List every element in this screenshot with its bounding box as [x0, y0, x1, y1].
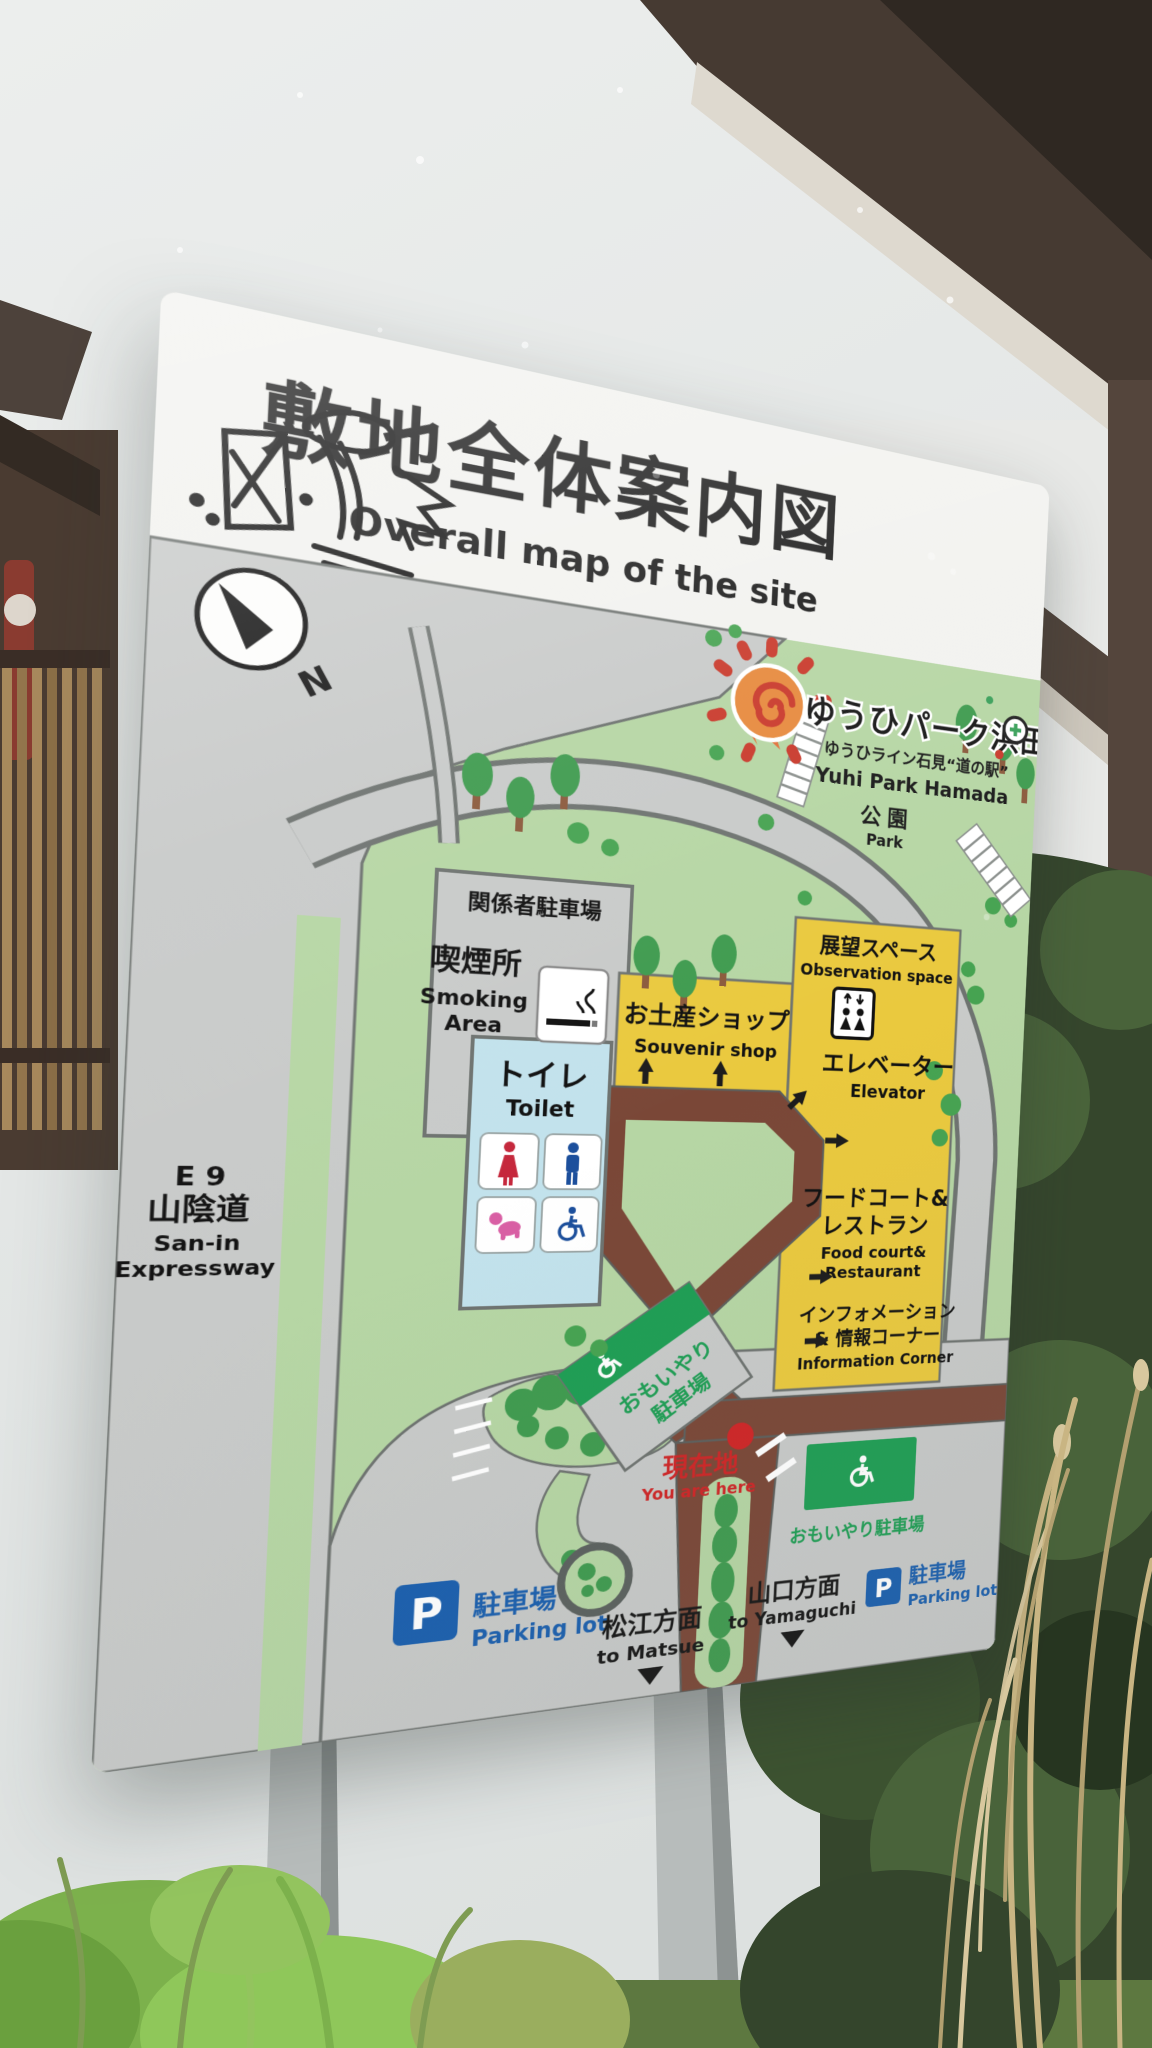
to-matsue: 松江方面 to Matsue [595, 1602, 706, 1692]
parking-p-letter: P [874, 1573, 893, 1605]
wheelchair-icon [559, 1207, 585, 1240]
logo-name-en: Yuhi Park Hamada [814, 762, 1009, 810]
parking-green-island [475, 1362, 685, 1598]
souvenir-label-en: Souvenir shop [634, 1035, 778, 1062]
walkway-loop [581, 1086, 826, 1349]
here-label-en: You are here [640, 1478, 756, 1506]
logo-badge-icon [1004, 716, 1028, 744]
man-icon [565, 1142, 580, 1184]
compass-n: N [291, 658, 339, 706]
arrow-right-icon [809, 1269, 833, 1284]
smoking-label-en1: Smoking [419, 985, 528, 1014]
courtyard-green [617, 1120, 796, 1304]
wheelchair-icon [851, 1455, 874, 1486]
map-park-base [91, 537, 1040, 1775]
priority-tilted-label-2: 駐車場 [647, 1369, 715, 1428]
elevator-label-en: Elevator [850, 1081, 926, 1104]
parking-p-letter: P [409, 1588, 444, 1640]
photo-of-site-map-sign: { "sign": { "title_jp": "敷地全体案内図", "titl… [0, 0, 1152, 2048]
down-triangle-icon [780, 1630, 805, 1650]
walkway-roads [564, 1086, 1021, 1709]
info-label-jp2: & 情報コーナー [813, 1324, 941, 1351]
matsue-en: to Matsue [596, 1634, 704, 1669]
to-yamaguchi: 山口方面 to Yamaguchi [727, 1569, 858, 1656]
round-sign [4, 594, 36, 626]
stairs-icon [956, 824, 1030, 917]
arrow-up-icon [637, 1058, 654, 1085]
graffiti-doodle [190, 382, 453, 590]
arrow-right-icon [825, 1133, 849, 1148]
bushes-group [542, 599, 1029, 1360]
north-arrow-icon [216, 583, 275, 653]
arrow-ne-icon [784, 1085, 812, 1113]
info-label-jp1: インフォメーション [798, 1300, 956, 1327]
building-main-wing [774, 917, 961, 1390]
priority-parking-right: おもいやり駐車場 [789, 1436, 929, 1547]
toilet-label-en: Toilet [505, 1097, 575, 1123]
staff-parking-label: 関係者駐車場 [467, 889, 602, 925]
site-map-sign-board: 敷地全体案内図 Overall map of the site [91, 289, 1049, 1774]
title-english: Overall map of the site [347, 498, 818, 621]
expressway-en1: San-in [153, 1231, 241, 1256]
smoking-area: 喫煙所 Smoking Area [418, 942, 609, 1044]
median-hedge [706, 1493, 739, 1674]
elevator-icon [832, 988, 875, 1039]
food-label-jp1: フードコート& [801, 1185, 949, 1212]
priority-right-label: おもいやり駐車場 [789, 1514, 925, 1548]
parking-left-jp: 駐車場 [472, 1582, 557, 1623]
access-road [273, 611, 998, 1428]
observation-label-en: Observation space [800, 960, 953, 988]
expressway-jp: 山陰道 [146, 1192, 251, 1227]
food-label-jp2: レストラン [821, 1213, 929, 1240]
roadside-green-strip [258, 915, 341, 1751]
baby-icon [488, 1212, 523, 1240]
parking-right: P 駐車場 Parking lot [865, 1554, 999, 1615]
parking-right-jp: 駐車場 [908, 1558, 966, 1589]
woman-icon [497, 1141, 520, 1185]
observation-label-jp: 展望スペース [819, 932, 937, 965]
here-label-jp: 現在地 [662, 1448, 740, 1484]
building-souvenir-wing [614, 973, 793, 1100]
staff-parking-area [424, 870, 632, 1139]
toilet-block: トイレ Toilet [460, 1037, 612, 1309]
park-logo: ゆうひパーク浜田 ゆうひライン石見“道の駅” Yuhi Park Hamada … [700, 627, 1050, 867]
compass: N [193, 562, 345, 709]
expressway-code: E 9 [174, 1162, 227, 1193]
sun-logo-icon [703, 627, 835, 774]
water-droplets [633, 471, 1007, 921]
parking-p-icon [865, 1567, 902, 1608]
expressway-label: E 9 山陰道 San-in Expressway [114, 1161, 281, 1282]
down-triangle-icon [637, 1666, 664, 1687]
food-label-en2: Restaurant [824, 1262, 921, 1283]
toilet-label-jp: トイレ [493, 1056, 589, 1095]
toilet-pictograms [475, 1133, 602, 1253]
smoking-label-en2: Area [444, 1012, 503, 1038]
info-label-en: Information Corner [797, 1349, 954, 1374]
arrow-right-icon [804, 1333, 828, 1349]
food-label-en1: Food court& [820, 1243, 927, 1263]
matsue-jp: 松江方面 [601, 1603, 703, 1645]
logo-line-jp: ゆうひライン石見“道の駅” [823, 738, 1009, 782]
stairs-icon [777, 709, 829, 807]
parking-slot-lines [452, 1399, 492, 1479]
souvenir-label-jp: お土産ショップ [623, 1000, 790, 1036]
yamaguchi-jp: 山口方面 [747, 1571, 841, 1610]
roundabout-island [559, 1543, 630, 1616]
logo-name-jp: ゆうひパーク浜田 [803, 690, 1049, 762]
wheelchair-icon [590, 1346, 622, 1379]
priority-tilted-label-1: おもいやり [614, 1334, 718, 1419]
trees-group [434, 581, 1039, 1364]
priority-parking-tilted: おもいやり 駐車場 [558, 1283, 752, 1471]
park-label-jp: 公園 [860, 803, 915, 835]
parking-left-en: Parking lot [471, 1612, 608, 1652]
exit-road [664, 1436, 780, 1695]
park-label-en: Park [866, 831, 904, 853]
you-are-here: 現在地 You are here [640, 1421, 759, 1505]
smoking-label-jp: 喫煙所 [429, 942, 523, 981]
building-pillar [1108, 380, 1152, 900]
service-road-band [684, 1384, 1007, 1442]
parking-right-en: Parking lot [907, 1581, 997, 1610]
yamaguchi-en: to Yamaguchi [728, 1597, 857, 1633]
crosswalk [754, 1431, 798, 1483]
smoking-icon [536, 966, 609, 1044]
arrow-up-icon [712, 1061, 728, 1087]
direction-arrows [624, 1058, 852, 1357]
expressway-en2: Expressway [114, 1255, 276, 1282]
elevator-label-jp: エレベーター [821, 1049, 955, 1082]
road-median [694, 1475, 752, 1690]
current-location-dot [727, 1422, 755, 1451]
parking-p-icon [392, 1579, 459, 1646]
expressway-road [91, 537, 784, 1775]
parking-left: P 駐車場 Parking lot [392, 1564, 610, 1661]
